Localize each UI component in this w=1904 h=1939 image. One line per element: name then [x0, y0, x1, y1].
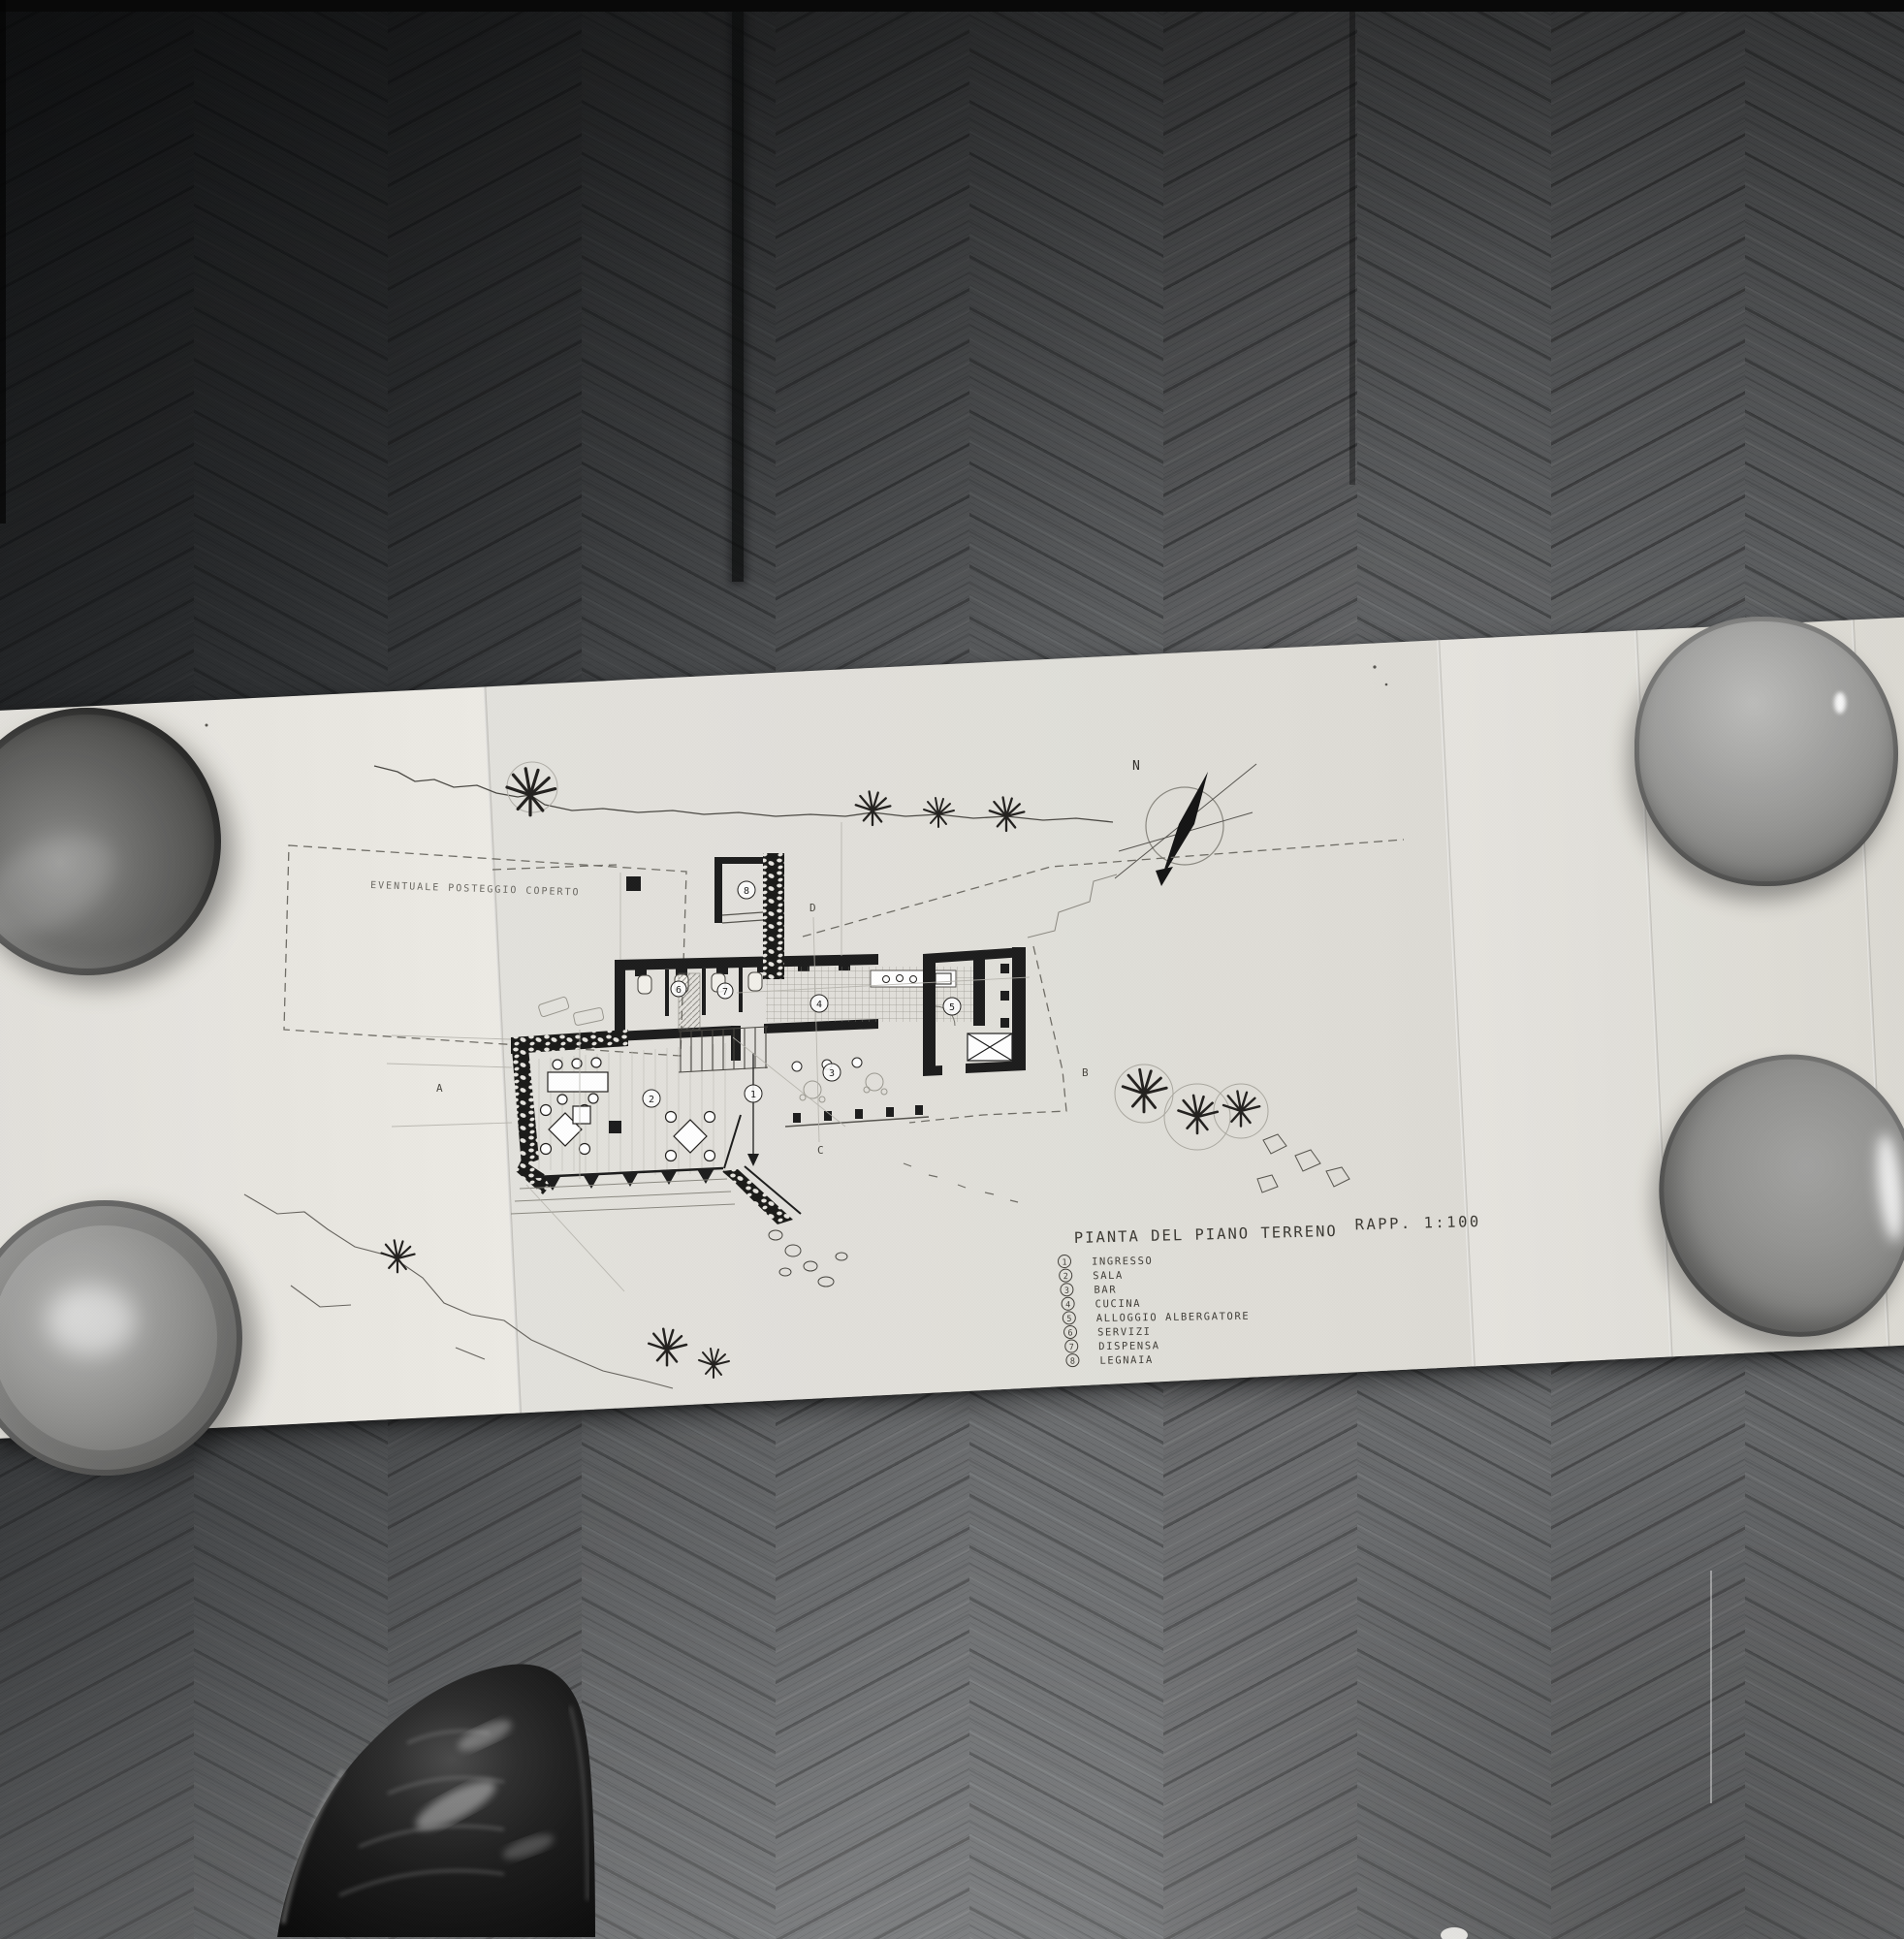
svg-text:4: 4 [816, 1000, 822, 1010]
paper-specks [206, 665, 1388, 726]
plan-scale: RAPP. 1:100 [1354, 1213, 1481, 1233]
walkway [723, 1166, 801, 1224]
film-frame-edge-left [0, 0, 6, 524]
svg-text:7: 7 [1069, 1343, 1074, 1352]
legend-item: 2SALA [1060, 1268, 1124, 1282]
plan-title: PIANTA DEL PIANO TERRENO [1074, 1223, 1338, 1247]
legend-item: 5ALLOGGIO ALBERGATORE [1063, 1309, 1250, 1324]
svg-text:6: 6 [1067, 1328, 1072, 1338]
title-block: PIANTA DEL PIANO TERRENO RAPP. 1:100 [1073, 1213, 1481, 1247]
room-marker: 2 [643, 1090, 660, 1107]
compass-rose: N [1115, 759, 1256, 886]
porch [785, 1058, 929, 1127]
svg-text:4: 4 [1065, 1300, 1070, 1310]
svg-text:1: 1 [750, 1090, 756, 1100]
svg-text:5: 5 [1066, 1315, 1071, 1324]
paperweight-bowl-top-right [1634, 617, 1898, 886]
legend-item: 3BAR [1061, 1283, 1117, 1296]
parked-car-sketches [538, 997, 604, 1026]
building-plan [511, 853, 1026, 1287]
hall-tables [541, 1058, 715, 1161]
floor-debris-spot [1441, 1927, 1468, 1939]
room-marker: 8 [738, 881, 755, 899]
room-marker: 1 [745, 1085, 762, 1102]
section-letter-c: C [817, 1144, 824, 1157]
wardrobe [968, 1033, 1012, 1061]
legend-item: 1INGRESSO [1058, 1254, 1153, 1268]
stepping-stones [769, 1230, 847, 1287]
section-letter-b: B [1082, 1066, 1089, 1079]
contour-lines-bottom-left [244, 1194, 673, 1388]
svg-text:BAR: BAR [1094, 1284, 1117, 1295]
bowl-highlight [1834, 692, 1846, 714]
legend: 1INGRESSO 2SALA 3BAR 4CUCINA 5ALLOGGIO A… [1058, 1253, 1251, 1367]
svg-text:SALA: SALA [1093, 1270, 1124, 1282]
svg-text:1: 1 [1062, 1257, 1066, 1267]
grass-tufts-top [507, 769, 1024, 831]
hall-floorboards [539, 1043, 725, 1175]
section-letter-d: D [809, 902, 816, 914]
svg-text:2: 2 [649, 1095, 654, 1105]
room-marker: 4 [810, 995, 828, 1012]
photograph: N EVENTUALE POSTEGGIO COPERTO [0, 0, 1904, 1939]
svg-text:8: 8 [1070, 1357, 1075, 1367]
parking-dashed-outline [284, 845, 686, 1056]
legend-item: 8LEGNAIA [1066, 1352, 1154, 1367]
svg-text:ALLOGGIO ALBERGATORE: ALLOGGIO ALBERGATORE [1096, 1311, 1251, 1324]
bowl-highlight [0, 814, 131, 956]
svg-text:2: 2 [1063, 1272, 1068, 1282]
svg-text:LEGNAIA: LEGNAIA [1099, 1354, 1154, 1367]
svg-text:3: 3 [1064, 1287, 1069, 1296]
shoe [277, 1665, 595, 1937]
film-frame-edge-top [0, 0, 1904, 12]
svg-text:INGRESSO: INGRESSO [1092, 1256, 1154, 1268]
section-letter-a: A [436, 1082, 443, 1095]
legend-item: 4CUCINA [1062, 1296, 1141, 1311]
svg-text:8: 8 [744, 886, 749, 897]
entrance-arrow [747, 1053, 759, 1166]
stone-wall [763, 853, 784, 979]
compass-north-label: N [1132, 759, 1140, 774]
terrace-merlons [535, 1168, 723, 1191]
bowl-highlight [47, 1286, 136, 1355]
plan-ink-layer: N EVENTUALE POSTEGGIO COPERTO [0, 0, 1904, 1939]
svg-text:DISPENSA: DISPENSA [1098, 1340, 1160, 1352]
svg-text:7: 7 [722, 987, 728, 998]
bowl-highlight [1873, 1132, 1904, 1243]
legend-item: 6SERVIZI [1063, 1324, 1151, 1339]
grass-tufts-bottom [382, 1240, 730, 1378]
legend-item: 7DISPENSA [1065, 1339, 1160, 1353]
svg-text:5: 5 [949, 1002, 955, 1013]
svg-text:3: 3 [829, 1068, 835, 1079]
svg-text:SERVIZI: SERVIZI [1097, 1326, 1152, 1339]
svg-text:6: 6 [676, 985, 682, 996]
room-marker: 5 [943, 998, 961, 1015]
svg-text:CUCINA: CUCINA [1095, 1298, 1142, 1311]
terrain-contour-top [374, 762, 1113, 822]
room-marker: 3 [823, 1064, 841, 1081]
parking-label: EVENTUALE POSTEGGIO COPERTO [370, 880, 581, 899]
room-marker: 7 [717, 983, 733, 999]
room-marker: 6 [671, 981, 686, 997]
